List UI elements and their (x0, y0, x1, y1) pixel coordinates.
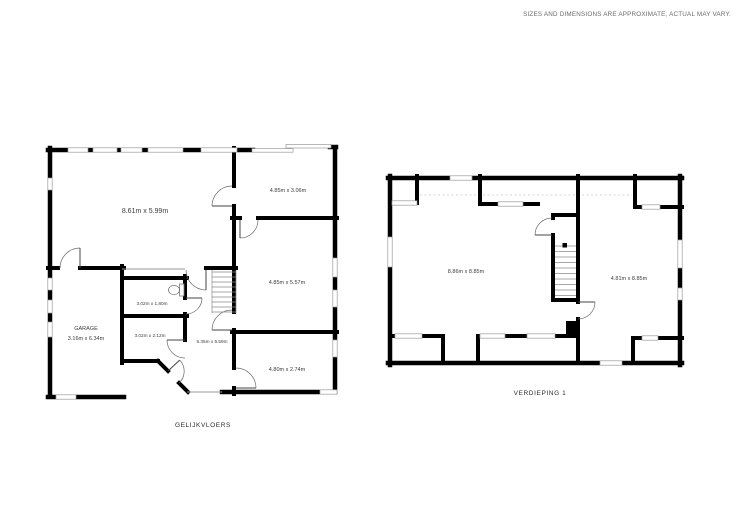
room-dimension-label: 3.16m x 6.34m (68, 336, 105, 342)
window (642, 205, 660, 209)
window (392, 201, 417, 205)
window (388, 237, 392, 267)
toilet-icon (169, 284, 185, 296)
door-swing (168, 360, 184, 383)
bay-window (286, 144, 331, 148)
staircase (555, 243, 576, 296)
window (320, 390, 337, 394)
window (48, 300, 52, 313)
window (498, 202, 523, 206)
window (48, 322, 52, 337)
window (395, 334, 422, 338)
door-swing (578, 302, 595, 319)
door-swing (60, 248, 80, 268)
stair-direction-marker (563, 243, 568, 248)
ground-floor-windows (48, 144, 337, 399)
room-dimension-label: 4.85m x 5.57m (269, 280, 306, 286)
window (56, 395, 76, 399)
room-dimension-label: 5.35m x 5.59m (196, 339, 227, 344)
room-dimension-label: 4.80m x 2.74m (269, 367, 306, 373)
door-swing (167, 340, 185, 358)
window (333, 258, 337, 277)
first-floor-doors (535, 218, 595, 319)
ground-floor-exterior-walls (48, 147, 336, 397)
room-dimension-label: 3.02m x 1.80m (136, 301, 167, 306)
window (68, 148, 88, 152)
window (93, 148, 117, 152)
floorplan-canvas: 8.61m x 5.99m 4.85m x 3.06m 4.85m x 5.57… (0, 0, 736, 521)
window (527, 334, 555, 338)
window (600, 361, 622, 365)
window (678, 240, 682, 268)
room-name-label: GARAGE (74, 326, 98, 332)
window (48, 178, 52, 190)
room-dimension-label: 8.86m x 8.85m (448, 269, 485, 275)
door-swing (236, 368, 256, 388)
ground-floor-plan: 8.61m x 5.99m 4.85m x 3.06m 4.85m x 5.57… (48, 144, 337, 429)
window (678, 288, 682, 300)
bay-window (252, 149, 293, 153)
window (450, 176, 472, 180)
window (201, 148, 237, 152)
window (333, 290, 337, 307)
window (148, 148, 183, 152)
room-dimension-label: 4.85m x 3.06m (270, 188, 307, 194)
window (333, 340, 337, 357)
ground-floor-interior-walls (48, 148, 337, 394)
door-swing (186, 298, 202, 314)
first-floor-plan: 8.86m x 8.85m 4.81m x 8.85m VERDIEPING 1 (388, 176, 682, 397)
floorplan-page: 8.61m x 5.99m 4.85m x 3.06m 4.85m x 5.57… (0, 0, 736, 521)
room-dimension-label: 8.61m x 5.99m (122, 208, 168, 215)
door-swing (212, 186, 232, 206)
window (48, 278, 52, 290)
disclaimer-text: SIZES AND DIMENSIONS ARE APPROXIMATE, AC… (523, 11, 731, 18)
door-swing (240, 220, 258, 238)
door-swing (186, 270, 206, 290)
window (480, 334, 505, 338)
floor-title: VERDIEPING 1 (514, 390, 567, 397)
room-dimension-label: 4.81m x 8.85m (611, 276, 648, 282)
door-swing (535, 218, 552, 235)
door-swing (212, 310, 232, 330)
floor-title: GELIJKVLOERS (175, 422, 231, 429)
window (642, 336, 658, 340)
chimney (566, 321, 578, 337)
room-dimension-label: 3.02m x 2.12m (134, 333, 165, 338)
window (121, 148, 142, 152)
